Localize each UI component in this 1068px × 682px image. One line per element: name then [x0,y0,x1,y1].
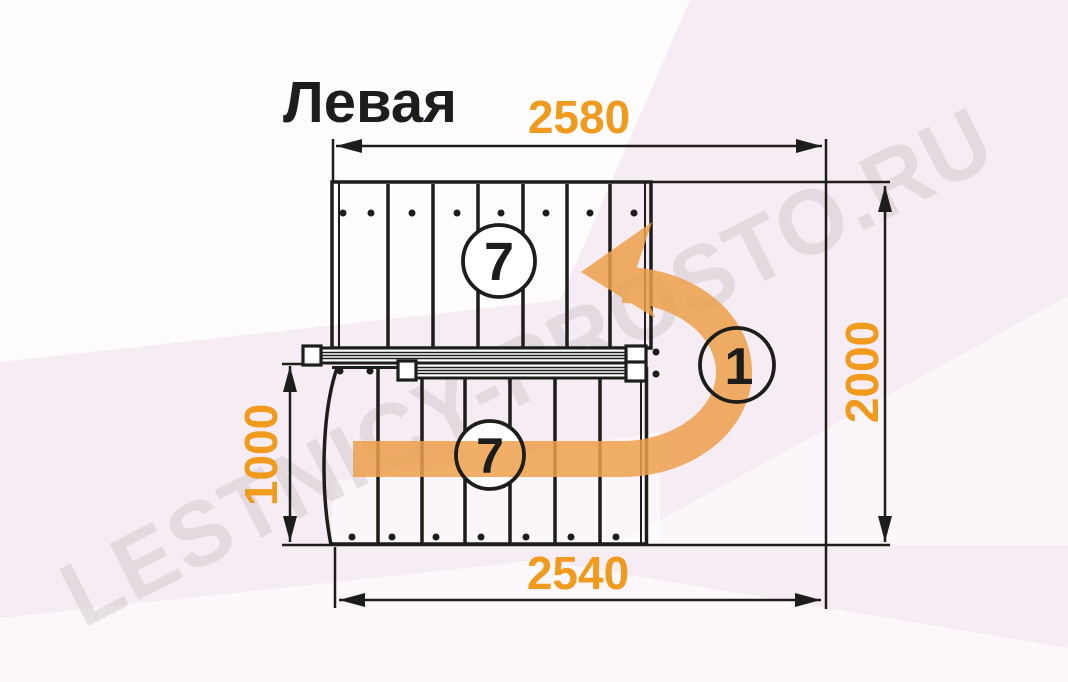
dimension-top-label: 2580 [528,91,630,143]
beam-cap-lower-right [626,362,646,381]
upper-step-count: 7 [484,232,514,292]
staircase-plan-image: LESTNICY-PROSTO.RU [0,0,1068,682]
staircase-plan-svg: LESTNICY-PROSTO.RU [0,0,1068,682]
lower-step-count: 7 [476,428,504,484]
beam-cap-upper-left [303,346,321,365]
page-title: Левая [283,70,457,135]
beam-cap-lower-left [398,361,416,380]
landing-number: 1 [725,338,754,396]
dimension-left-label: 1000 [235,404,287,506]
dimension-right-label: 2000 [836,321,888,423]
dimension-bottom-label: 2540 [527,547,629,599]
landing-beam-lower [398,361,646,381]
